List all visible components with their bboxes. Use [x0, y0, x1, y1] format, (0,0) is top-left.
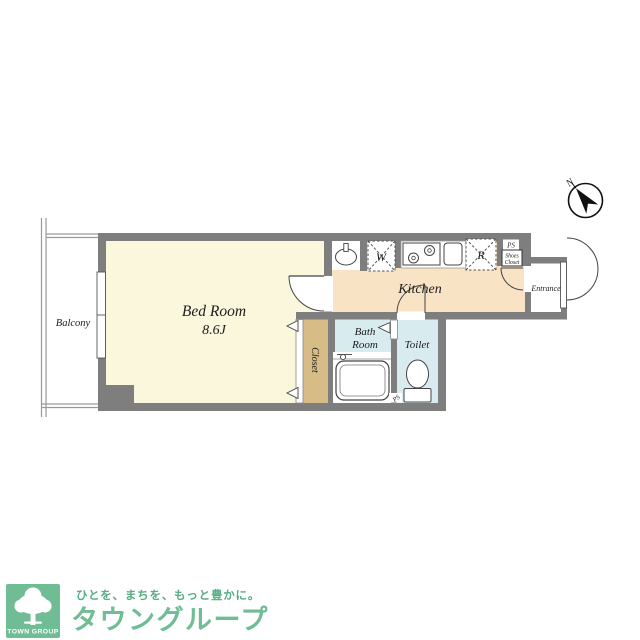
- ps-top-label: PS: [506, 242, 515, 250]
- washer-label: W: [376, 250, 387, 264]
- toilet-fixture: [404, 360, 431, 402]
- kitchen-label: Kitchen: [397, 282, 442, 297]
- footer-brand: タウングループ: [71, 604, 269, 636]
- shoes-closet-label-line1: Shoes: [505, 254, 519, 260]
- wash-basin: [332, 241, 360, 270]
- bedroom-label: Bed Room: [182, 303, 246, 320]
- logo-square-text: TOWN GROUP: [7, 629, 59, 636]
- entrance-label: Entrance: [530, 284, 561, 293]
- footer-logo: TOWN GROUP ひとを、まちを、もっと豊かに。 タウングループ: [6, 584, 269, 638]
- shoes-closet-label-line2: Closet: [505, 260, 520, 266]
- kitchen-sink: [444, 243, 462, 265]
- bedroom-floor: [106, 241, 324, 403]
- kitchen-counter: [401, 241, 466, 268]
- balcony-window: [97, 272, 106, 358]
- entrance-door-leaf: [561, 262, 567, 308]
- toilet-label: Toilet: [405, 339, 431, 351]
- bedroom-size-label: 8.6J: [202, 323, 227, 338]
- floorplan-canvas: N Balcony Bed Room 8.6J Kitchen Bath Roo…: [0, 0, 640, 640]
- compass: N: [563, 176, 602, 218]
- entrance-door: [561, 238, 598, 308]
- floorplan-page: N Balcony Bed Room 8.6J Kitchen Bath Roo…: [0, 0, 640, 640]
- closet-label: Closet: [309, 347, 320, 373]
- bath-label-line2: Room: [351, 339, 378, 351]
- balcony-label: Balcony: [56, 318, 91, 329]
- bath-faucet: [340, 354, 345, 359]
- bathtub: [333, 352, 391, 403]
- stove: [403, 243, 440, 265]
- fridge-label: R: [476, 248, 485, 262]
- bath-label-line1: Bath: [355, 326, 376, 338]
- footer-tagline: ひとを、まちを、もっと豊かに。: [76, 588, 260, 602]
